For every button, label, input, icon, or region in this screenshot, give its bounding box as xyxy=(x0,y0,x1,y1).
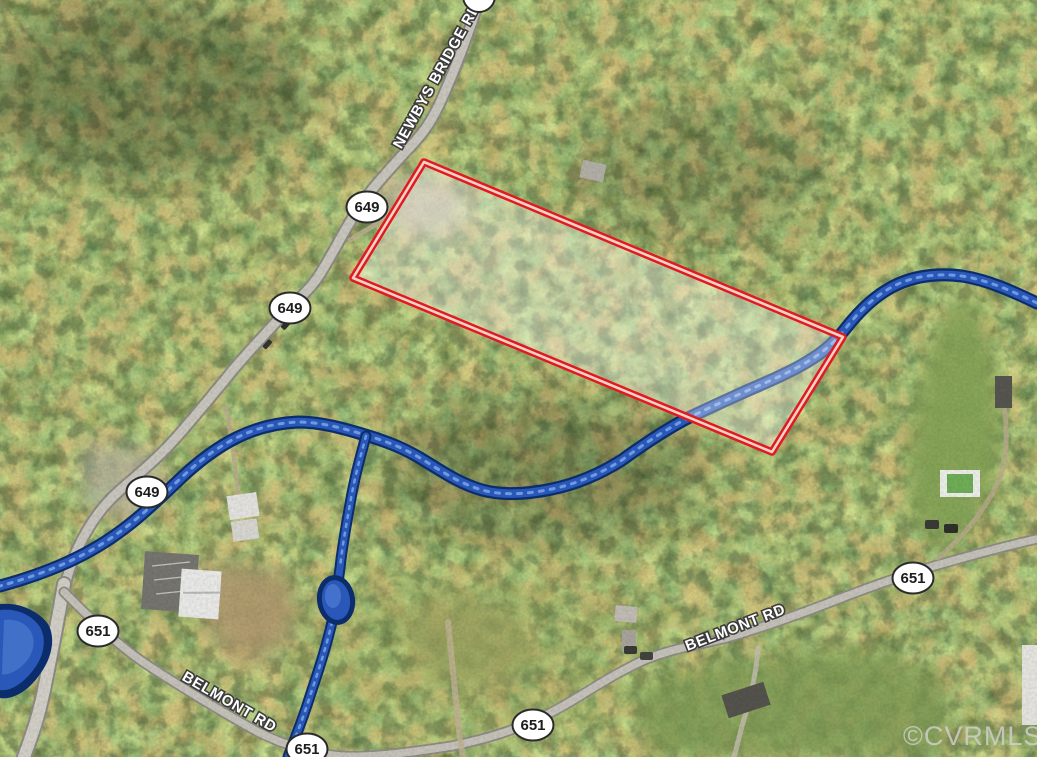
route-shield-651-west: 651 xyxy=(78,616,119,647)
route-shield-649-north: 649 xyxy=(347,192,388,223)
leaf-grain-overlay xyxy=(0,0,1037,757)
aerial-map-image: NEWBYS BRIDGE RD BELMONT RD BELMONT RD 6… xyxy=(0,0,1037,757)
satellite-map-canvas: NEWBYS BRIDGE RD BELMONT RD BELMONT RD 6… xyxy=(0,0,1037,757)
route-shield-649-south: 649 xyxy=(127,477,168,508)
route-shield-651-bottom-left: 651 xyxy=(287,734,328,757)
svg-text:651: 651 xyxy=(520,717,545,734)
cvrmls-watermark: ©CVRMLS xyxy=(903,721,1037,751)
route-shield-651-bottom-center: 651 xyxy=(513,710,554,741)
svg-text:651: 651 xyxy=(85,623,110,640)
route-shield-649-mid: 649 xyxy=(270,293,311,324)
svg-text:651: 651 xyxy=(294,741,319,757)
svg-text:649: 649 xyxy=(277,300,302,317)
route-shield-651-east: 651 xyxy=(893,563,934,594)
svg-text:651: 651 xyxy=(900,570,925,587)
svg-text:649: 649 xyxy=(134,484,159,501)
svg-text:649: 649 xyxy=(354,199,379,216)
